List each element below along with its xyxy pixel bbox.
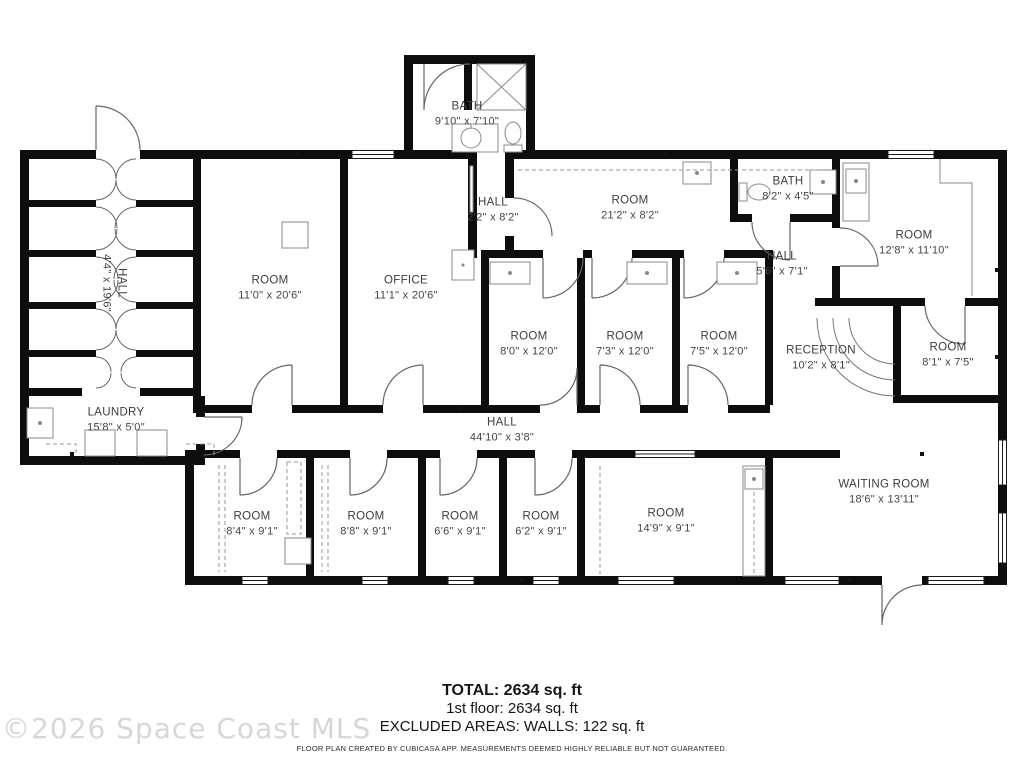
room-label-bath-top: BATH9'10" x 7'10"	[435, 98, 499, 129]
room-label-bath-8-2: BATH8'2" x 4'5"	[762, 173, 813, 204]
room-label-room-8-4: ROOM8'4" x 9'1"	[226, 508, 277, 539]
dashed-lines	[46, 170, 820, 574]
room-label-hall-vertical: HALL4'4" x 19'6"	[98, 254, 129, 312]
room-label-reception: RECEPTION10'2" x 8'1"	[786, 342, 856, 373]
room-label-room-12-8: ROOM12'8" x 11'10"	[879, 227, 949, 258]
room-label-room-21-2: ROOM21'2" x 8'2"	[601, 192, 659, 223]
room-label-room-14-9: ROOM14'9" x 9'1"	[637, 505, 695, 536]
room-label-room-7-5: ROOM7'5" x 12'0"	[690, 328, 748, 359]
room-label-room-11-0: ROOM11'0" x 20'6"	[238, 272, 301, 303]
room-label-laundry: LAUNDRY15'8" x 5'0"	[87, 404, 145, 435]
room-label-hall-5-6: HALL5'6" x 7'1"	[756, 248, 807, 279]
room-label-room-7-3: ROOM7'3" x 12'0"	[596, 328, 654, 359]
room-label-waiting-room: WAITING ROOM18'6" x 13'11"	[838, 476, 929, 507]
fixtures	[27, 64, 869, 576]
room-label-room-6-6: ROOM6'6" x 9'1"	[434, 508, 485, 539]
room-label-office: OFFICE11'1" x 20'6"	[374, 272, 437, 303]
room-label-hall-2-2: HALL2'2" x 8'2"	[467, 194, 518, 225]
room-label-room-8-8: ROOM8'8" x 9'1"	[340, 508, 391, 539]
room-label-room-8-0: ROOM8'0" x 12'0"	[500, 328, 558, 359]
mls-watermark: ©2026 Space Coast MLS	[2, 712, 371, 745]
room-label-hall-44-10: HALL44'10" x 3'8"	[470, 414, 534, 445]
room-label-room-8-1: ROOM8'1" x 7'5"	[922, 339, 973, 370]
floorplan-page: BATH9'10" x 7'10" HALL2'2" x 8'2" ROOM21…	[0, 0, 1024, 768]
floorplan-drawing	[0, 0, 1024, 768]
fixture-lines	[471, 64, 972, 296]
total-area-text: TOTAL: 2634 sq. ft	[0, 682, 1024, 700]
room-label-room-6-2: ROOM6'2" x 9'1"	[515, 508, 566, 539]
